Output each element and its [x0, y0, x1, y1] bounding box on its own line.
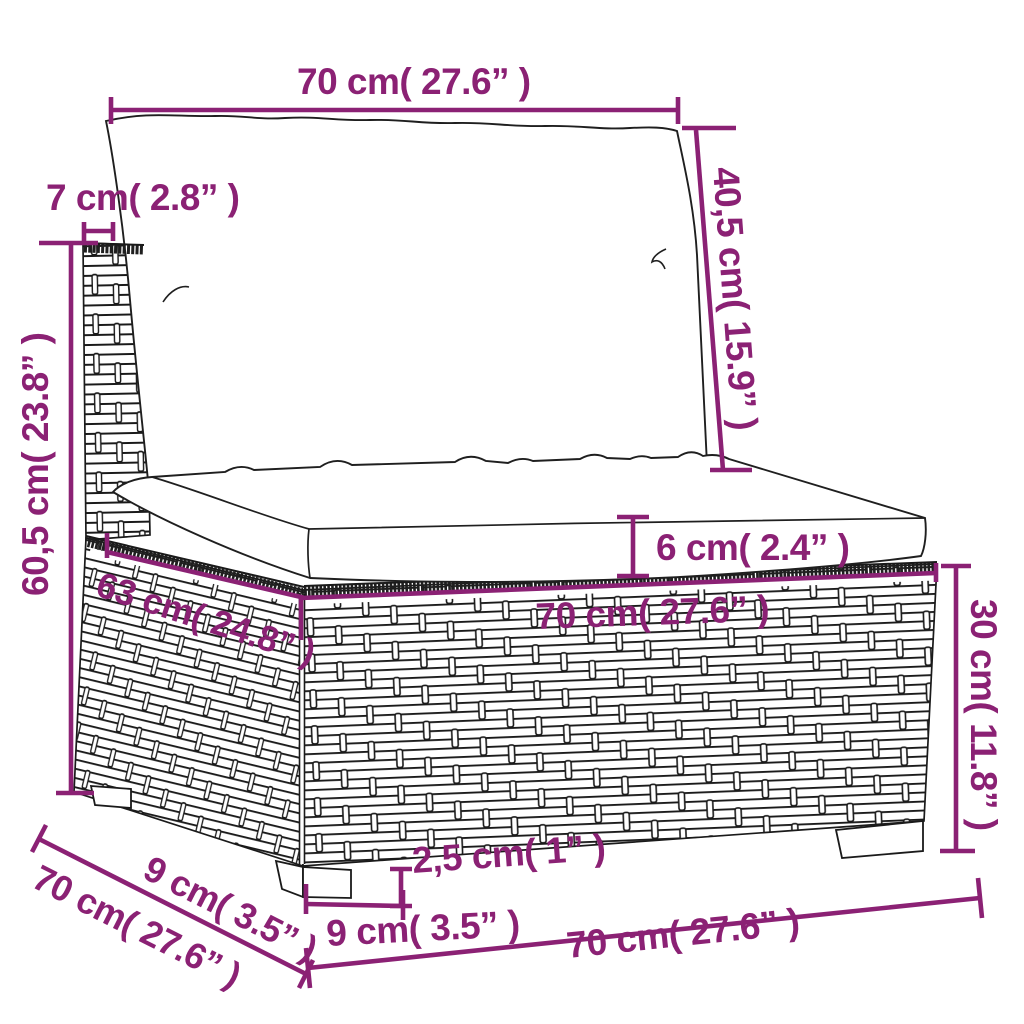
- svg-text:6 cm( 2.4” ): 6 cm( 2.4” ): [656, 527, 849, 568]
- svg-text:30 cm( 11.8” ): 30 cm( 11.8” ): [963, 599, 1004, 831]
- svg-text:70 cm( 27.6” ): 70 cm( 27.6” ): [297, 61, 531, 102]
- svg-text:7 cm( 2.8” ): 7 cm( 2.8” ): [46, 177, 239, 218]
- svg-text:60,5 cm( 23.8” ): 60,5 cm( 23.8” ): [15, 333, 56, 596]
- svg-text:70 cm( 27.6” ): 70 cm( 27.6” ): [535, 588, 770, 637]
